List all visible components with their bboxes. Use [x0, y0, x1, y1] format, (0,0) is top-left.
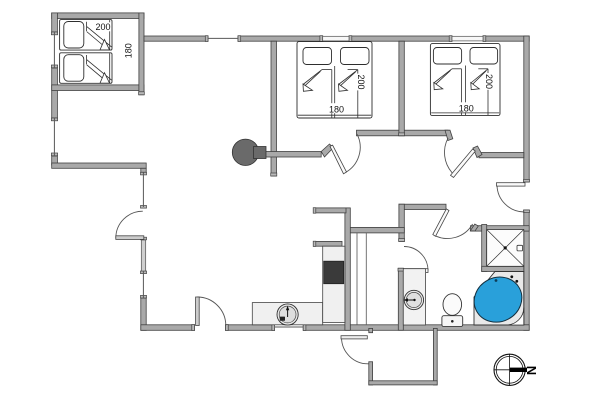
svg-text:180: 180	[329, 105, 344, 115]
svg-text:200: 200	[96, 22, 111, 32]
svg-text:180: 180	[459, 103, 474, 113]
svg-text:N: N	[524, 366, 539, 375]
svg-text:200: 200	[484, 74, 494, 89]
svg-text:180: 180	[123, 43, 133, 58]
svg-text:200: 200	[356, 75, 366, 90]
